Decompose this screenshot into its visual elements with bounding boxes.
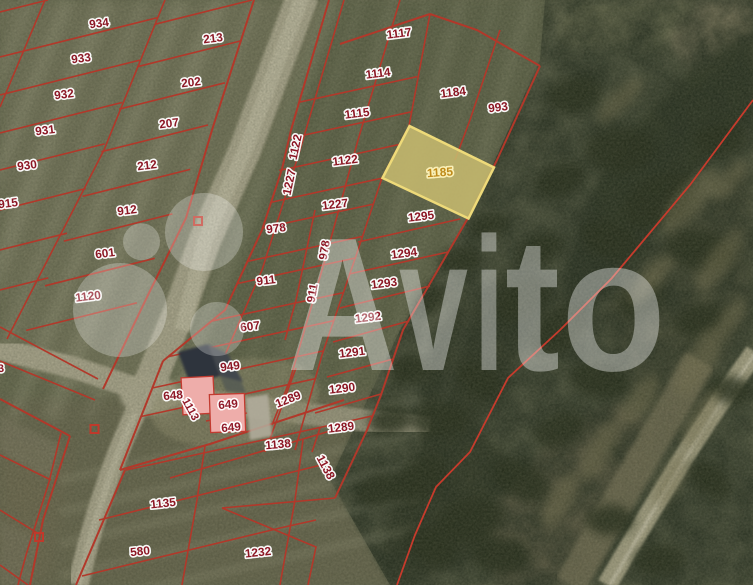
svg-text:931: 931 [34,122,56,138]
svg-text:580: 580 [130,543,151,559]
svg-text:1138: 1138 [265,436,292,452]
svg-text:o: o [561,199,666,411]
svg-text:912: 912 [116,202,138,218]
svg-text:932: 932 [53,86,75,102]
svg-text:978: 978 [265,220,287,236]
svg-text:202: 202 [180,74,202,90]
svg-text:915: 915 [0,195,19,211]
svg-text:t: t [505,199,560,411]
svg-text:949: 949 [219,358,241,374]
svg-text:649: 649 [221,419,242,435]
svg-text:649: 649 [218,396,239,412]
svg-text:993: 993 [487,99,509,115]
svg-text:v: v [399,199,468,411]
svg-text:207: 207 [158,115,180,131]
svg-text:1185: 1185 [427,164,454,180]
svg-text:601: 601 [94,245,116,261]
svg-text:934: 934 [88,15,110,31]
svg-text:i: i [474,199,504,411]
svg-text:212: 212 [136,157,158,173]
svg-text:213: 213 [202,30,224,46]
svg-text:933: 933 [70,50,92,66]
svg-text:930: 930 [16,157,38,173]
svg-text:1232: 1232 [244,544,272,561]
svg-text:911: 911 [256,272,277,288]
svg-text:1135: 1135 [150,495,177,512]
svg-text:A: A [287,199,398,411]
